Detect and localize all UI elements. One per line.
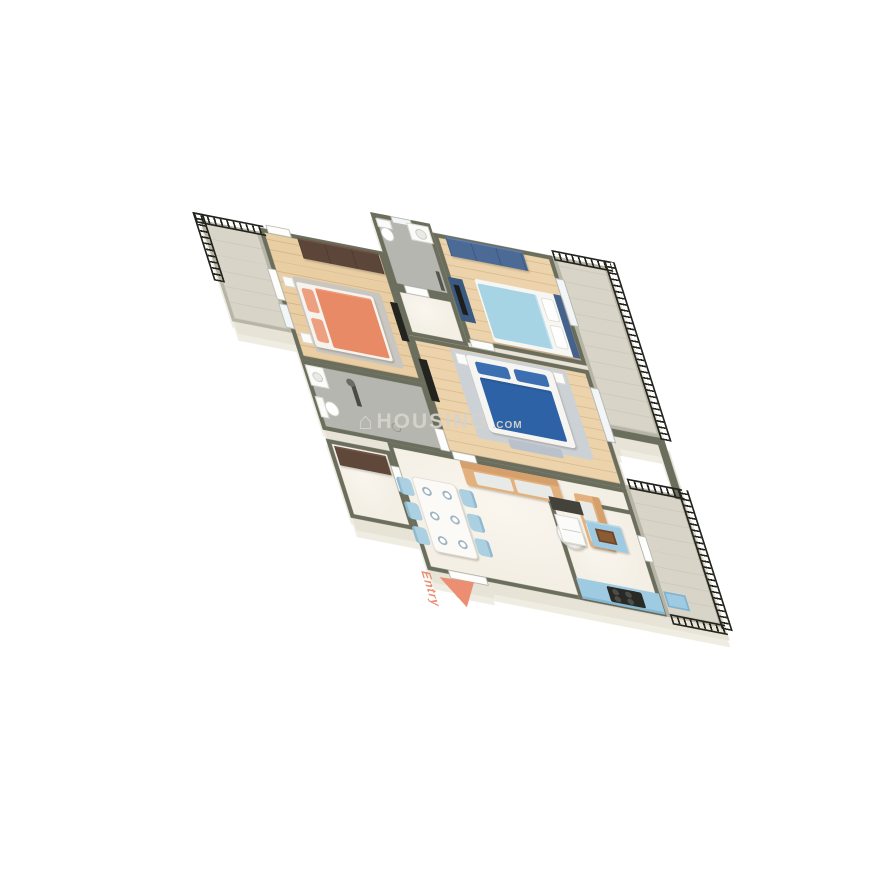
plate (449, 515, 461, 526)
watermark: ⌂ HOUSING .COM (358, 410, 523, 434)
burner (624, 591, 632, 598)
bedroom2-tv-unit (448, 277, 477, 324)
watermark-brand: HOUSING (377, 410, 489, 434)
burner (614, 596, 622, 603)
floor-plan-render: Entry ⌂ HOUSING .COM (0, 0, 870, 870)
bedroom2-dresser (445, 237, 528, 271)
kitchen-island (585, 520, 628, 553)
utility-basin (663, 591, 690, 611)
kitchen-counter-south (576, 577, 666, 614)
plate (457, 539, 469, 550)
bedroom2-bed (474, 279, 581, 359)
burner (611, 589, 619, 596)
watermark-suffix: .COM (493, 420, 523, 431)
plate (441, 490, 453, 501)
bathroom1-toilet-bowl (379, 226, 396, 243)
bathroom2-washbasin (305, 364, 330, 389)
bedroom1-wardrobe (297, 237, 385, 274)
fridge-handle (562, 529, 581, 533)
entry-label: Entry (418, 570, 444, 609)
entry-arrow-icon (439, 575, 483, 610)
bathroom1-basin (414, 228, 428, 241)
master-tv-panel (418, 358, 440, 402)
bathroom1-shower-pole (435, 271, 445, 291)
burner (627, 598, 635, 605)
bathroom1-vanity (406, 222, 434, 244)
bed2-blanket (477, 283, 553, 349)
foyer-bench (334, 446, 392, 475)
bathroom2-shower-head (345, 378, 356, 388)
plate (429, 511, 441, 522)
island-sink (595, 528, 618, 545)
plate (421, 486, 433, 497)
house-icon: ⌂ (358, 410, 373, 434)
plate (437, 535, 449, 546)
stove (606, 586, 646, 609)
bedroom2-tv-screen (453, 284, 468, 315)
bathroom2-basin (311, 371, 324, 383)
